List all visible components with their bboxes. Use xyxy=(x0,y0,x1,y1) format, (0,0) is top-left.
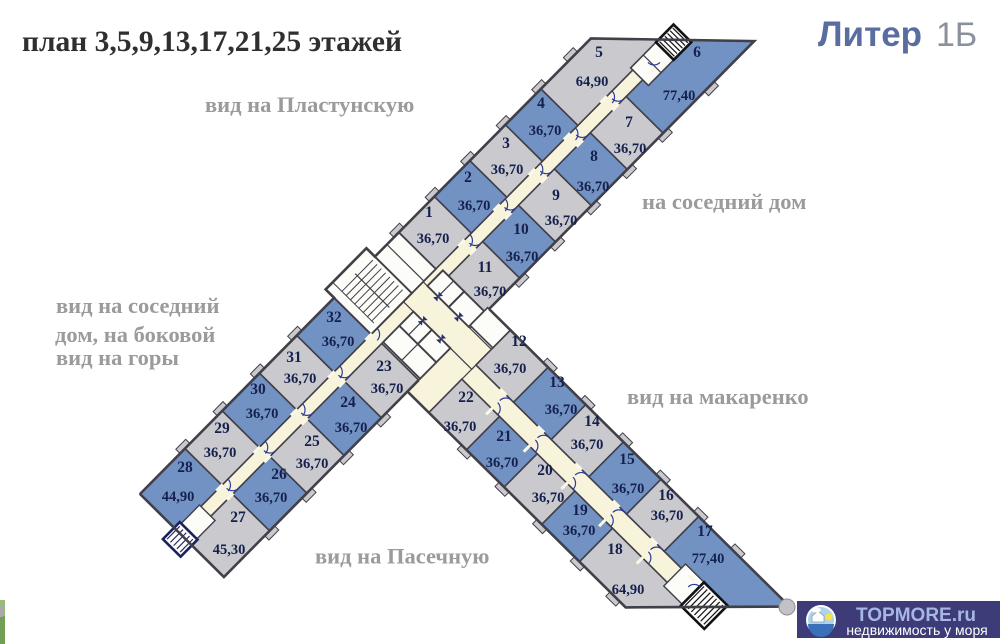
svg-text:недвижимость у моря: недвижимость у моря xyxy=(846,622,987,638)
svg-text:36,70: 36,70 xyxy=(545,213,578,229)
svg-text:29: 29 xyxy=(214,420,230,437)
svg-text:36,70: 36,70 xyxy=(335,420,368,436)
svg-text:36,70: 36,70 xyxy=(612,481,645,497)
svg-text:64,90: 64,90 xyxy=(612,582,645,598)
svg-text:16: 16 xyxy=(658,487,674,504)
svg-text:77,40: 77,40 xyxy=(692,551,725,567)
svg-text:1Б: 1Б xyxy=(936,16,977,54)
svg-text:36,70: 36,70 xyxy=(444,419,477,435)
svg-text:36,70: 36,70 xyxy=(246,406,279,422)
svg-text:32: 32 xyxy=(326,309,342,326)
svg-text:25: 25 xyxy=(304,433,320,450)
svg-text:36,70: 36,70 xyxy=(571,437,604,453)
svg-text:2: 2 xyxy=(464,169,472,186)
svg-text:1: 1 xyxy=(425,204,433,221)
svg-text:8: 8 xyxy=(590,148,598,165)
svg-text:36,70: 36,70 xyxy=(491,162,524,178)
svg-text:31: 31 xyxy=(286,349,302,366)
svg-text:36,70: 36,70 xyxy=(417,231,450,247)
svg-text:вид на Пластунскую: вид на Пластунскую xyxy=(205,92,414,117)
svg-text:18: 18 xyxy=(607,541,623,558)
svg-text:36,70: 36,70 xyxy=(614,141,647,157)
svg-text:36,70: 36,70 xyxy=(458,198,491,214)
svg-text:64,90: 64,90 xyxy=(576,74,609,90)
svg-text:вид на соседний: вид на соседний xyxy=(56,293,219,318)
svg-text:26: 26 xyxy=(271,466,287,483)
svg-text:6: 6 xyxy=(693,44,701,61)
svg-text:28: 28 xyxy=(177,459,193,476)
svg-text:36,70: 36,70 xyxy=(577,179,610,195)
svg-text:17: 17 xyxy=(697,523,713,540)
svg-text:36,70: 36,70 xyxy=(532,490,565,506)
svg-text:15: 15 xyxy=(619,451,635,468)
svg-text:30: 30 xyxy=(250,381,266,398)
svg-text:36,70: 36,70 xyxy=(651,508,684,524)
svg-text:24: 24 xyxy=(340,394,356,411)
svg-text:36,70: 36,70 xyxy=(296,456,329,472)
svg-text:Литер: Литер xyxy=(818,15,922,54)
svg-text:12: 12 xyxy=(511,333,527,350)
svg-text:45,30: 45,30 xyxy=(213,542,246,558)
svg-text:20: 20 xyxy=(537,462,553,479)
svg-text:на соседний дом: на соседний дом xyxy=(642,189,806,214)
svg-text:10: 10 xyxy=(513,221,529,238)
svg-text:11: 11 xyxy=(478,259,493,276)
svg-text:36,70: 36,70 xyxy=(204,445,237,461)
svg-text:5: 5 xyxy=(595,44,603,61)
svg-text:13: 13 xyxy=(549,374,565,391)
svg-text:14: 14 xyxy=(584,413,600,430)
svg-text:19: 19 xyxy=(572,502,588,519)
svg-text:27: 27 xyxy=(230,509,246,526)
svg-text:22: 22 xyxy=(458,389,474,406)
svg-text:4: 4 xyxy=(537,95,545,112)
svg-text:36,70: 36,70 xyxy=(494,361,527,377)
svg-text:36,70: 36,70 xyxy=(322,334,355,350)
svg-text:план 3,5,9,13,17,21,25 этажей: план 3,5,9,13,17,21,25 этажей xyxy=(22,26,402,58)
svg-text:вид на макаренко: вид на макаренко xyxy=(627,384,809,409)
svg-text:21: 21 xyxy=(496,428,512,445)
svg-text:вид на горы: вид на горы xyxy=(56,345,179,370)
svg-text:дом, на боковой: дом, на боковой xyxy=(55,322,215,347)
svg-text:36,70: 36,70 xyxy=(545,402,578,418)
svg-text:23: 23 xyxy=(376,358,392,375)
svg-text:44,90: 44,90 xyxy=(162,489,195,505)
svg-text:77,40: 77,40 xyxy=(663,88,696,104)
svg-text:36,70: 36,70 xyxy=(563,523,596,539)
svg-text:36,70: 36,70 xyxy=(255,490,288,506)
svg-text:9: 9 xyxy=(552,187,560,204)
svg-text:36,70: 36,70 xyxy=(474,284,507,300)
svg-text:36,70: 36,70 xyxy=(371,381,404,397)
svg-text:вид на Пасечную: вид на Пасечную xyxy=(315,544,490,569)
svg-text:36,70: 36,70 xyxy=(486,455,519,471)
svg-text:36,70: 36,70 xyxy=(284,371,317,387)
svg-text:3: 3 xyxy=(502,135,510,152)
svg-text:7: 7 xyxy=(625,114,633,131)
svg-text:36,70: 36,70 xyxy=(529,123,562,139)
svg-text:36,70: 36,70 xyxy=(506,249,539,265)
